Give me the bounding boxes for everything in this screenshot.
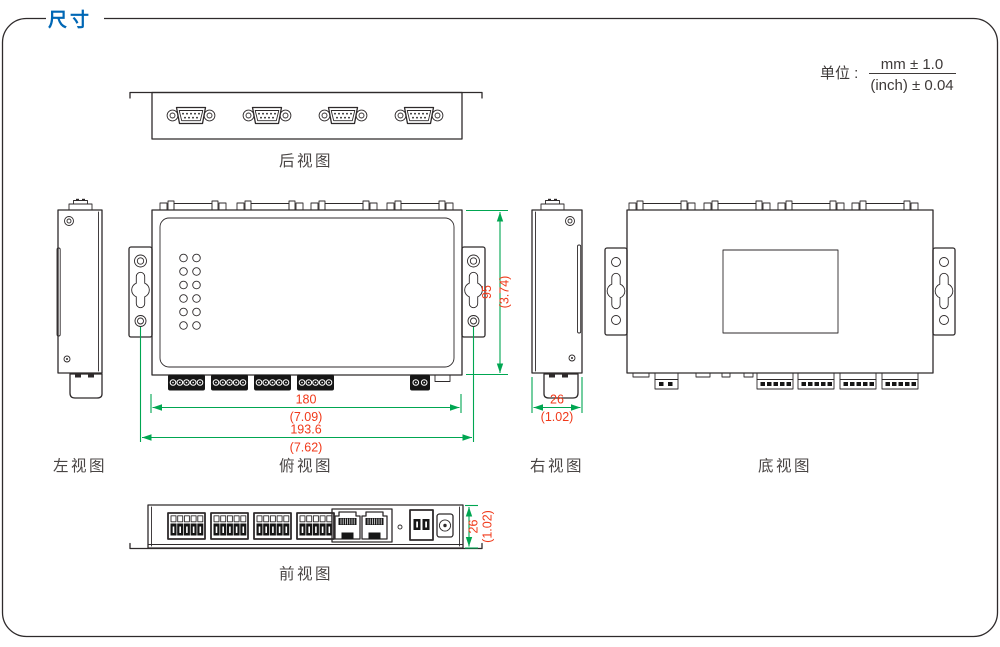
terminal-block-5pin xyxy=(297,513,334,539)
db9-connector-icon xyxy=(395,108,443,124)
db9-connector-icon xyxy=(243,108,291,124)
led-grid xyxy=(180,254,201,329)
power-plug-side xyxy=(70,374,102,398)
dim-text-95-mm: 95 xyxy=(480,285,494,299)
terminal-block-5pin xyxy=(211,375,248,391)
db9-top-icon xyxy=(311,201,377,210)
terminal-block-5pin xyxy=(757,373,793,389)
terminal-block-5pin xyxy=(297,375,334,391)
terminal-block-2pin xyxy=(410,375,430,391)
power-terminal xyxy=(410,510,433,540)
rear-view-label: 后视图 xyxy=(279,152,333,170)
ear-holes xyxy=(935,258,953,325)
terminal-block-5pin xyxy=(882,373,918,389)
db9-top-icon xyxy=(704,201,770,210)
bottom-body xyxy=(627,210,933,373)
dim-text-26-in: (1.02) xyxy=(541,410,574,424)
ear-holes xyxy=(132,255,150,327)
db9-top-icon xyxy=(387,201,453,210)
top-view-label: 俯视图 xyxy=(279,457,333,475)
left-view: 左视图 xyxy=(53,199,107,475)
rj45-ports xyxy=(332,509,392,542)
db9-connector-icon xyxy=(167,108,215,124)
side-rail-groove xyxy=(578,245,581,333)
rj45-port-icon xyxy=(335,512,360,539)
bottom-view-label: 底视图 xyxy=(758,457,812,475)
edge-tab xyxy=(435,375,450,382)
mounting-ear-right xyxy=(933,248,955,335)
dim-text-193-in: (7.62) xyxy=(290,441,323,455)
dim-text-26f-in: (1.02) xyxy=(481,510,495,543)
terminal-block-5pin xyxy=(840,373,876,389)
dc-jack xyxy=(437,514,453,537)
terminal-block-2pin xyxy=(655,373,678,389)
mounting-ear-left xyxy=(605,248,627,335)
dim-text-180-mm: 180 xyxy=(296,393,317,407)
unit-mm: mm ± 1.0 xyxy=(881,56,943,73)
screw-icon xyxy=(566,217,575,226)
rear-body xyxy=(152,93,462,140)
reset-pinhole xyxy=(398,525,402,529)
screw-dot-icon xyxy=(66,358,68,360)
product-label-area xyxy=(723,250,838,333)
dimension-diagram-page: 尺寸 单位 : mm ± 1.0 (inch) ± 0.04 后视图 xyxy=(0,0,1000,647)
terminal-block-5pin xyxy=(798,373,834,389)
unit-label: 单位 : xyxy=(820,65,858,82)
db9-top-icon xyxy=(160,201,226,210)
dimension-diagram: 尺寸 单位 : mm ± 1.0 (inch) ± 0.04 后视图 xyxy=(0,0,1000,647)
dim-text-193-mm: 193.6 xyxy=(290,423,321,437)
rear-view: 后视图 xyxy=(130,93,482,171)
terminal-block-5pin xyxy=(168,375,205,391)
right-body xyxy=(532,210,582,373)
db9-side-icon xyxy=(69,199,92,210)
terminal-block-5pin xyxy=(211,513,248,539)
terminal-block-5pin xyxy=(254,375,291,391)
front-view-label: 前视图 xyxy=(279,565,333,583)
mounting-ear-left xyxy=(129,247,152,337)
left-body xyxy=(58,210,102,373)
terminal-block-5pin xyxy=(254,513,291,539)
ear-holes xyxy=(607,258,625,325)
page-title: 尺寸 xyxy=(48,8,92,31)
db9-top-icon xyxy=(852,201,918,210)
top-cover-panel xyxy=(160,218,454,367)
front-view: 前视图 xyxy=(130,505,482,583)
screw-slot-icon xyxy=(67,219,71,223)
rear-flange xyxy=(130,93,482,99)
db9-top-icon xyxy=(629,201,695,210)
db9-connector-icon xyxy=(319,108,367,124)
screw-slot-icon xyxy=(568,219,572,223)
dim-text-95-in: (3.74) xyxy=(498,276,512,309)
dim-text-26f-mm: 26 xyxy=(467,520,481,534)
db9-side-icon xyxy=(541,199,564,210)
unit-inch: (inch) ± 0.04 xyxy=(870,77,953,94)
unit-note: 单位 : mm ± 1.0 (inch) ± 0.04 xyxy=(820,56,956,94)
db9-top-icon xyxy=(237,201,303,210)
rj45-port-icon xyxy=(362,512,387,539)
top-body xyxy=(152,210,462,375)
bottom-view: 底视图 xyxy=(605,201,955,475)
right-view: 右视图 xyxy=(530,199,584,475)
screw-dot-icon xyxy=(571,357,573,359)
left-view-label: 左视图 xyxy=(53,457,107,475)
dim-text-26-mm: 26 xyxy=(550,393,564,407)
terminal-block-5pin xyxy=(168,513,205,539)
right-view-label: 右视图 xyxy=(530,457,584,475)
db9-top-icon xyxy=(778,201,844,210)
screw-icon xyxy=(65,217,74,226)
dimensions: 95 (3.74) 180 (7.09) 193.6 (7.62) 26 (1.… xyxy=(141,211,583,549)
